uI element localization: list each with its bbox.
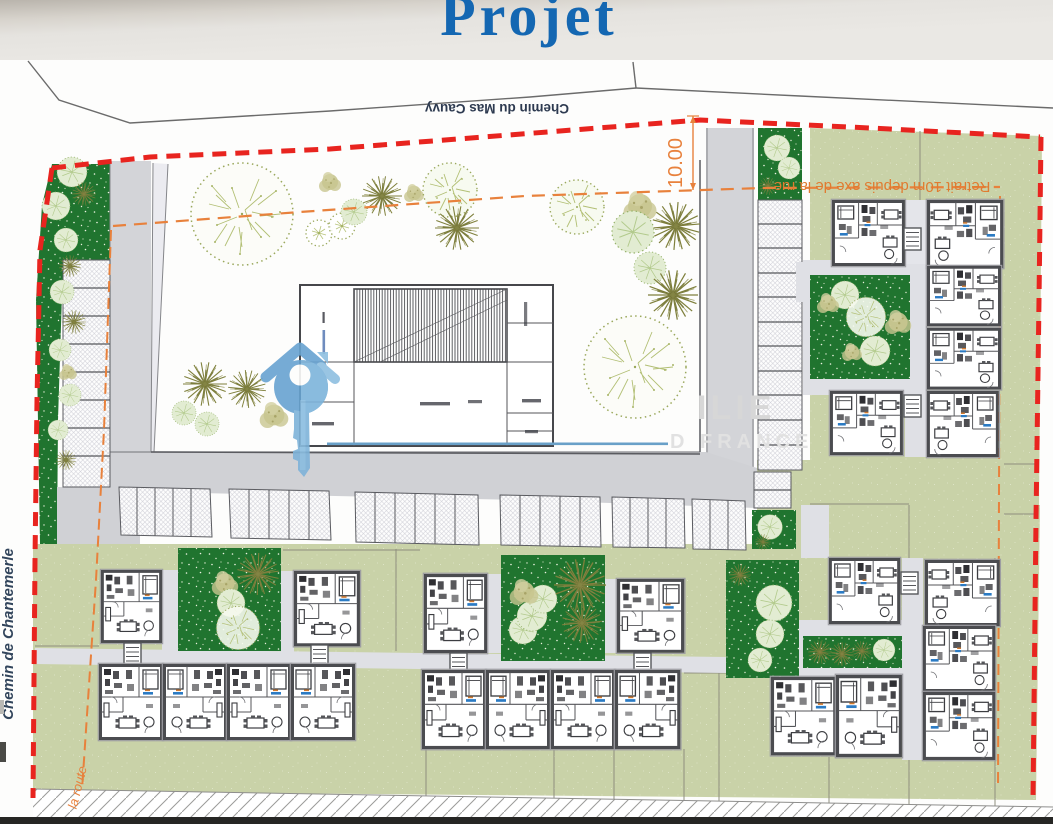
svg-text:ILIE: ILIE <box>697 389 775 427</box>
svg-text:Retrait 10m depuis axe de la r: Retrait 10m depuis axe de la rue <box>774 178 991 195</box>
svg-text:Chemin de Chantemerle: Chemin de Chantemerle <box>0 548 17 720</box>
svg-text:D FRANCE: D FRANCE <box>670 431 813 453</box>
svg-text:10.00: 10.00 <box>665 138 687 188</box>
svg-text:Chemin du Mas Cauvy: Chemin du Mas Cauvy <box>424 101 569 116</box>
svg-text:Projet: Projet <box>440 0 618 48</box>
